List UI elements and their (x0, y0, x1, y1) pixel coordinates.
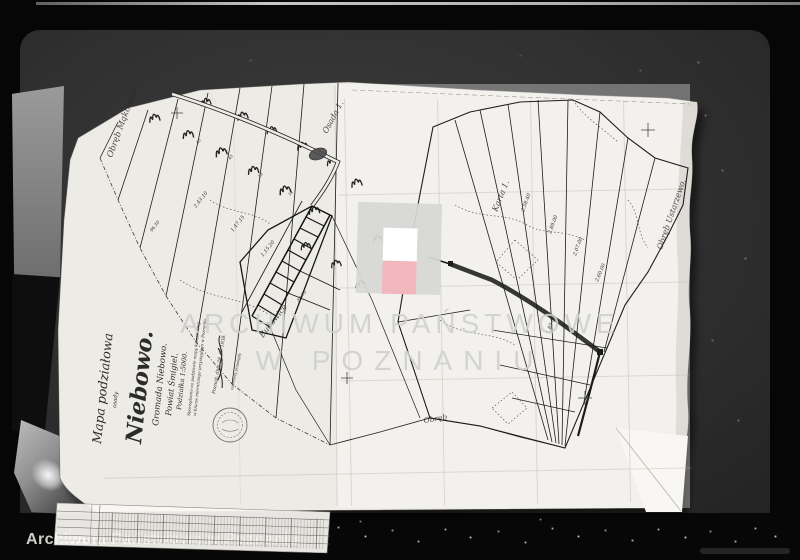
mat-specks (0, 0, 1, 1)
watermark: ARCHIWUM PAŃSTWOWE W POZNANIU (0, 308, 800, 377)
corner-smudge (700, 548, 790, 554)
frame-highlight-line (36, 2, 800, 5)
watermark-footer: Archiwum Państwowe w Poznaniu (26, 531, 299, 549)
left-gray-object (12, 86, 64, 282)
photo-frame: Archiwum Państwowe w Poznaniu (0, 0, 800, 560)
watermark-line1: ARCHIWUM PAŃSTWOWE (0, 308, 800, 340)
flag-white-bar (383, 228, 418, 262)
archive-logo (356, 202, 442, 295)
flag-red-bar (382, 261, 417, 295)
watermark-line2: W POZNANIU (0, 345, 800, 377)
